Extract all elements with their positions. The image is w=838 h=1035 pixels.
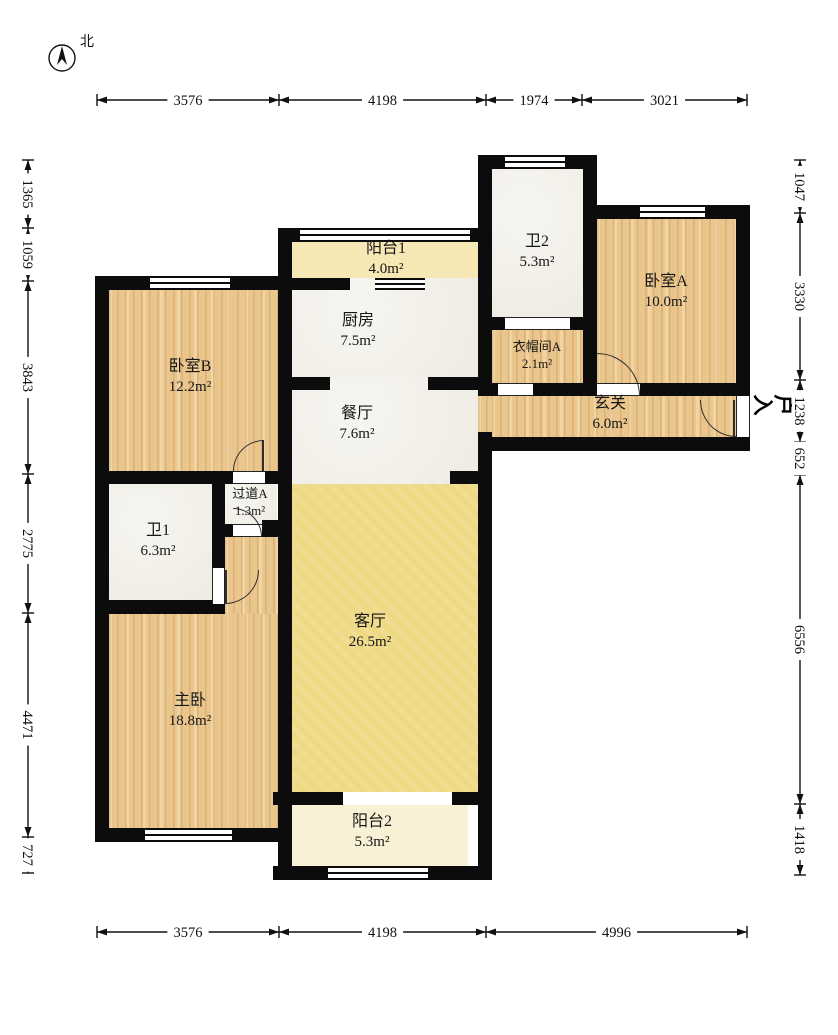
svg-text:1047: 1047 (791, 172, 807, 201)
svg-text:652: 652 (791, 448, 807, 470)
svg-text:4198: 4198 (368, 93, 397, 109)
svg-text:1974: 1974 (520, 93, 550, 109)
svg-text:3576: 3576 (174, 925, 203, 941)
svg-text:3021: 3021 (650, 93, 679, 109)
svg-text:北: 北 (80, 34, 94, 50)
svg-text:1059: 1059 (19, 240, 35, 269)
dimension-lines: 3576419819743021357641984996136510593843… (0, 0, 838, 1035)
svg-text:4198: 4198 (368, 925, 397, 941)
svg-text:3843: 3843 (19, 363, 35, 392)
svg-text:6556: 6556 (791, 625, 807, 654)
svg-text:4471: 4471 (19, 711, 35, 740)
svg-text:1418: 1418 (791, 825, 807, 854)
svg-text:1238: 1238 (791, 397, 807, 426)
compass-icon: 北 (49, 34, 94, 71)
svg-text:3330: 3330 (791, 282, 807, 311)
svg-text:4996: 4996 (602, 925, 631, 941)
floorplan-canvas: 阳台14.0m²卫25.3m²卧室A10.0m²厨房7.5m²衣帽间A2.1m²… (0, 0, 838, 1035)
svg-text:727: 727 (19, 844, 35, 866)
svg-text:3576: 3576 (174, 93, 203, 109)
svg-text:2775: 2775 (19, 529, 35, 558)
svg-text:1365: 1365 (19, 180, 35, 209)
